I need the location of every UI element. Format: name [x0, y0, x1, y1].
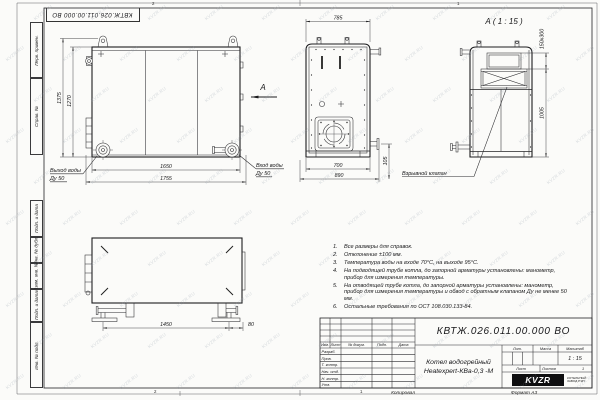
note-item: Остальные требования по ОСТ 108.030.133-… [331, 304, 569, 311]
svg-text:Выход воды: Выход воды [50, 168, 81, 174]
tb-scale-label: Масштаб [558, 345, 592, 352]
margin-label: Инв. № подл. [34, 341, 39, 370]
margin-label: Справ. № [34, 106, 39, 127]
corner-marks [101, 246, 233, 295]
tb-row-utv: Утв. [320, 381, 341, 388]
tb-col-docnum: № докум. [341, 342, 372, 348]
margin-cell-perv-primen: Перв. примен. [30, 22, 43, 78]
tb-col-podp: Подп. [372, 342, 392, 348]
valve-cover [487, 53, 521, 69]
margin-label: Перв. примен. [34, 35, 39, 66]
sight-glass [319, 101, 324, 106]
detail-top-pipe [462, 50, 470, 54]
dim-1375: 1375 [57, 92, 63, 104]
zone-mark-bottom-left: 2 [154, 389, 156, 394]
note-item: На подводящей трубе котла, до запорной а… [331, 268, 569, 282]
inverted-doc-number-stamp: КВТЖ.026.011.00.000 ВО [46, 8, 140, 22]
inlet-label: Вход воды Ду 50 [239, 155, 284, 177]
svg-text:А: А [259, 83, 265, 92]
margin-cell-inv-podl: Инв. № подл. [30, 322, 43, 388]
tb-col-data: Дата [392, 342, 415, 348]
dim-80: 80 [248, 322, 254, 328]
side-ladder [86, 118, 92, 148]
drain-pipe [370, 139, 379, 150]
zone-mark-top-left: 2 [152, 1, 154, 6]
note-item: Все размеры для справок. [331, 244, 569, 251]
top-pipe-flange [379, 48, 381, 55]
tb-row-razrab: Разраб. [320, 348, 341, 355]
outlet-label: Выход воды Ду 50 [49, 156, 97, 182]
tb-mass-label: Масса [533, 345, 558, 352]
dim-700: 700 [334, 163, 343, 169]
top-view: 1450 80 [85, 238, 254, 331]
zone-mark-top-right: 1 [457, 1, 459, 6]
tb-product-name: Котел водогрейный Heatexpert-КВа-0,3 -М [415, 345, 502, 388]
panel-cross-marks [98, 51, 228, 57]
right-leg [212, 303, 240, 322]
margin-label: Инв. № дубл. [34, 236, 39, 264]
note-item: На отводящей трубе котла, до запорной ар… [331, 283, 569, 304]
hinge-ticks [241, 62, 244, 132]
top-pipe [370, 50, 379, 55]
margin-label: Взам. инв. № [34, 262, 39, 290]
top-dimensions: 1450 80 [103, 322, 254, 331]
dim-1270: 1270 [67, 95, 73, 107]
tb-sheet-label: Лист [502, 365, 540, 372]
top-side-bracket [85, 255, 92, 295]
margin-cell-sprav-no: Справ. № [30, 78, 43, 155]
center-mark [338, 101, 344, 107]
dim-785: 785 [334, 16, 343, 22]
dim-890: 890 [335, 173, 344, 179]
copy-label: Копировал [380, 389, 426, 398]
technical-notes: Все размеры для справок. Отклонение ±100… [331, 244, 569, 312]
margin-cell-vzam-inv: Взам. инв. № [30, 263, 43, 289]
dim-1005: 1005 [540, 107, 546, 119]
kvzr-logo: KVZR [512, 374, 564, 386]
note-item: Отклонение ±100 мм. [331, 252, 569, 259]
valve-label: Взрывной клапан [402, 87, 507, 177]
drawing-sheet: { "sheet": { "stamp_doc_number": "КВТЖ.0… [0, 0, 600, 400]
margin-label: Подп. и дата [34, 291, 39, 320]
view-arrow-a: А [251, 83, 277, 97]
margin-label: Подп. и дата [34, 204, 39, 233]
tb-lit-label: Лит. [502, 345, 533, 352]
margin-cell-inv-dubl: Инв. № дубл. [30, 237, 43, 263]
format-label: Формат А3 [500, 389, 548, 398]
dim-1450: 1450 [160, 322, 172, 328]
sight-slots [322, 56, 340, 69]
stamp-text: КВТЖ.026.011.00.000 ВО [52, 11, 132, 18]
dim-1755: 1755 [160, 176, 172, 182]
tb-scale-value: 1 : 15 [558, 352, 592, 365]
svg-text:Вход воды: Вход воды [256, 163, 283, 169]
note-item: Температура воды на входе 70°С, на выход… [331, 260, 569, 267]
tb-sheets-label: Листов [542, 365, 568, 372]
top-side-flange [86, 57, 93, 66]
detail-view-a: А ( 1 : 15 ) [402, 17, 549, 177]
side-view: 785 700 890 105 [300, 16, 392, 183]
detail-title: А ( 1 : 15 ) [484, 17, 523, 26]
logo-caption-line2: ЗАВОД РЭП [567, 380, 585, 384]
detail-side-pipe [451, 142, 471, 152]
product-name-line1: Котел водогрейный [426, 358, 491, 367]
dim-105: 105 [383, 157, 389, 166]
dim-150x300: 150x300 [540, 29, 546, 49]
product-name-line2: Heatexpert-КВа-0,3 -М [424, 367, 493, 376]
detail-dimensions: 150x300 1005 [521, 29, 549, 157]
margin-cell-podp-data-1: Подп. и дата [30, 200, 43, 237]
front-view: 1375 1270 1650 1755 Выход воды Ду 50 Вхо… [49, 36, 284, 185]
lifting-lug-right [228, 36, 238, 47]
front-dimensions: 1375 1270 1650 1755 [57, 39, 246, 186]
tb-sheets-value: 1 [576, 365, 590, 372]
tb-row-tkontr: Т. контр. [320, 361, 341, 368]
burner-plate [315, 117, 353, 151]
tb-row-nachotd: Нач. отд. [320, 368, 341, 375]
dim-1650: 1650 [160, 164, 172, 170]
side-lugs [317, 38, 349, 45]
explosion-valve [481, 69, 527, 88]
lifting-lug-left [98, 36, 108, 47]
kvzr-logo-caption: КОТЕЛЬНЫЙ ЗАВОД РЭП [566, 374, 592, 386]
svg-text:Взрывной клапан: Взрывной клапан [402, 170, 447, 177]
left-leg [92, 303, 134, 322]
svg-text:Ду 50: Ду 50 [49, 176, 65, 182]
zone-mark-bottom-mid: 1 [360, 389, 362, 394]
tb-doc-number: КВТЖ.026.011.00.000 ВО [415, 318, 592, 345]
margin-cell-podp-data-2: Подп. и дата [30, 289, 43, 322]
svg-text:Ду 50: Ду 50 [255, 171, 271, 177]
detail-lugs [477, 41, 519, 47]
